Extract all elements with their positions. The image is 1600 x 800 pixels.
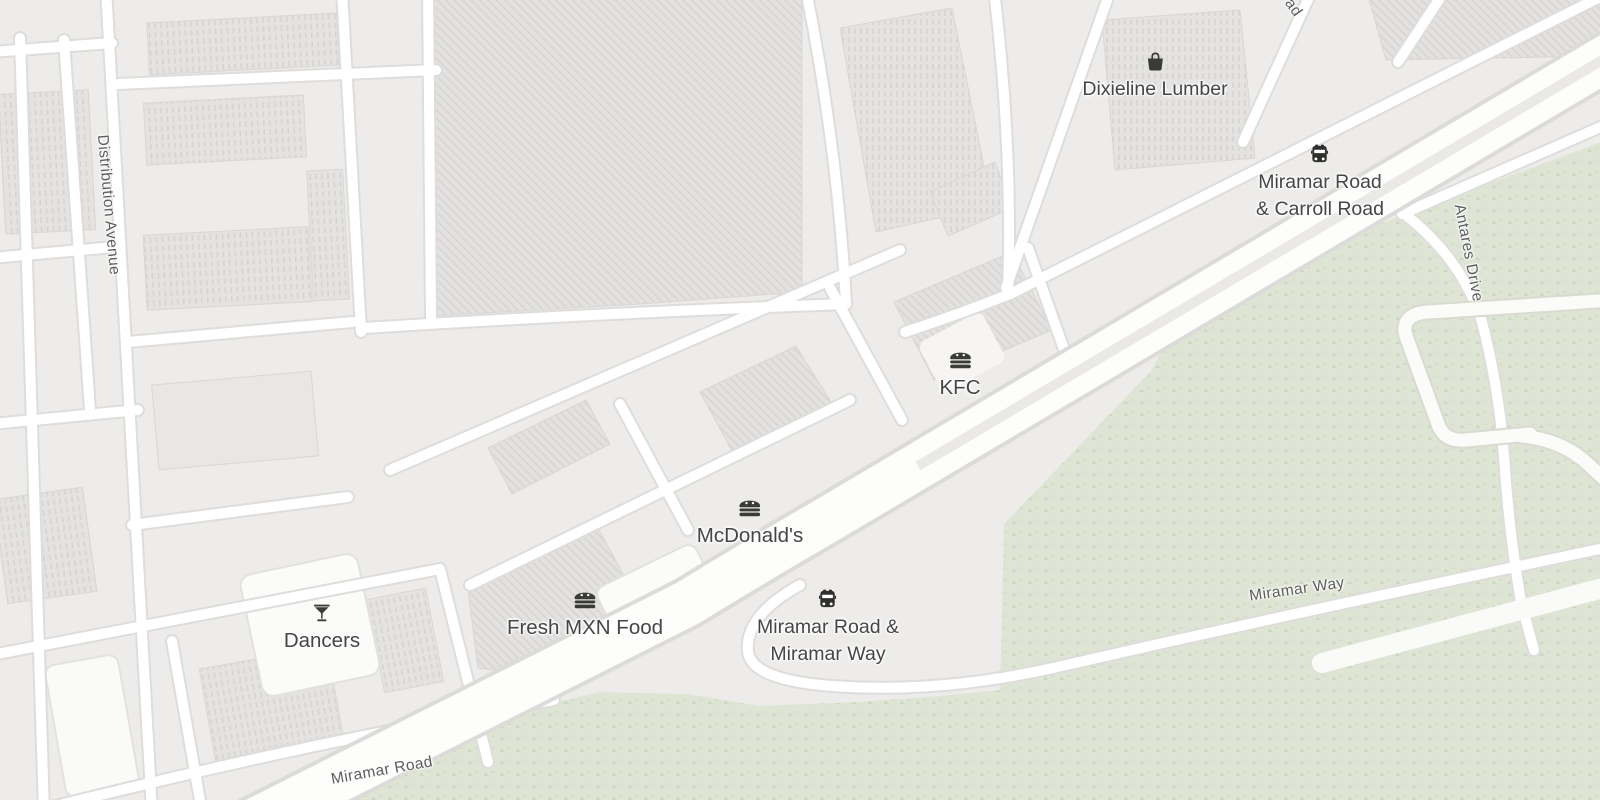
bus-icon [815,587,841,611]
shopping-bag-icon [1142,49,1168,73]
bus-icon [1307,142,1333,166]
cocktail-icon [309,600,335,624]
burger-icon [572,587,598,611]
burger-icon [947,347,973,371]
poi-label: McDonald's [697,522,803,549]
map-base-layer [0,0,1600,800]
transit-stop-miramar-way[interactable]: Miramar Road &Miramar Way [757,587,899,668]
map-canvas[interactable]: Dixieline Lumber Miramar Road& Carroll R… [0,0,1600,800]
poi-dancers[interactable]: Dancers [284,600,360,654]
transit-stop-miramar-carroll[interactable]: Miramar Road& Carroll Road [1256,142,1384,223]
poi-label: Dancers [284,627,360,654]
poi-label: Dixieline Lumber [1082,76,1227,103]
burger-icon [737,495,763,519]
poi-kfc[interactable]: KFC [940,347,981,401]
poi-label: Miramar Road& Carroll Road [1256,169,1384,223]
poi-label: Fresh MXN Food [507,614,663,641]
poi-fresh-mxn-food[interactable]: Fresh MXN Food [507,587,663,641]
poi-label: Miramar Road &Miramar Way [757,614,899,668]
poi-label: KFC [940,374,981,401]
poi-dixieline-lumber[interactable]: Dixieline Lumber [1082,49,1227,103]
poi-mcdonalds[interactable]: McDonald's [697,495,803,549]
